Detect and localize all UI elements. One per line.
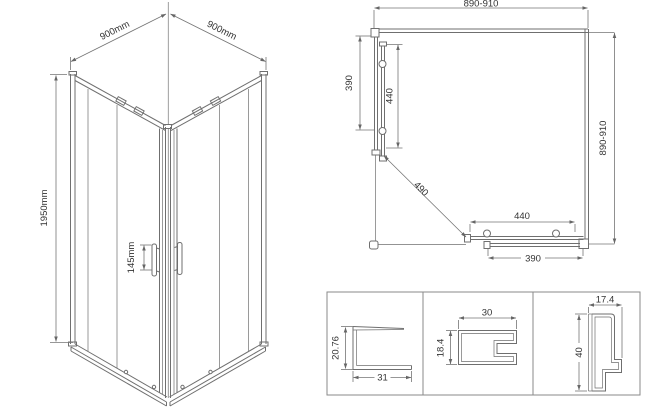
iso-door-handles (152, 243, 182, 277)
dim-label-u-channel-width: 31 (377, 373, 388, 384)
iso-left-wall-glass (88, 89, 163, 394)
dim-iso-width-left: 900mm (71, 2, 169, 124)
iso-corner-post (164, 125, 172, 399)
dim-label-frame-height: 18.4 (436, 339, 447, 358)
plan-right-wall (579, 29, 589, 249)
iso-view: 900mm 900mm 1950mm 145mm (39, 2, 268, 406)
screw (124, 370, 127, 373)
dim-label-plan-side-door: 440 (385, 88, 396, 104)
door-roller (484, 230, 491, 237)
dim-label-door-rail-width: 17.4 (596, 295, 615, 306)
plan-bottom-panels (378, 230, 584, 249)
dim-iso-handle: 145mm (126, 242, 152, 274)
dim-label-iso-handle: 145mm (126, 242, 137, 274)
dim-label-plan-side-fixed: 390 (344, 75, 355, 91)
profile-box-3 (533, 292, 640, 395)
dim-plan-overall-width: 890-910 (374, 0, 588, 28)
dim-label-u-channel-height: 20.76 (331, 336, 342, 360)
screw (181, 385, 184, 388)
drawing-svg: 900mm 900mm 1950mm 145mm (0, 0, 650, 418)
dim-plan-front-door: 440 (470, 211, 575, 232)
plan-structure (370, 29, 589, 250)
screw (209, 370, 212, 373)
dim-plan-side-door: 440 (385, 45, 403, 149)
plan-left-panels (370, 37, 387, 249)
iso-right-wall-glass (174, 89, 249, 394)
dim-label-door-rail-height: 40 (574, 347, 585, 358)
dim-plan-front-fixed: 390 (488, 249, 583, 265)
screw (152, 385, 155, 388)
dim-iso-width-right: 900mm (171, 14, 267, 70)
plan-back-wall (371, 29, 588, 38)
technical-drawing-shower-enclosure: 900mm 900mm 1950mm 145mm (0, 0, 650, 418)
dim-label-plan-front-door: 440 (514, 211, 530, 222)
dim-iso-height: 1950mm (39, 75, 73, 343)
right-door-handle (178, 243, 183, 275)
iso-left-post (69, 72, 77, 347)
iso-dimensions: 900mm 900mm 1950mm 145mm (39, 2, 266, 343)
plan-view: 890-910 890-910 390 440 (344, 0, 615, 265)
door-roller (379, 128, 386, 135)
dim-label-plan-diagonal: 490 (411, 180, 430, 199)
dim-label-plan-overall-depth: 890-910 (598, 121, 609, 156)
door-roller (553, 230, 560, 237)
dim-label-frame-width: 30 (482, 308, 493, 319)
dim-plan-side-fixed: 390 (344, 36, 374, 130)
dim-label-iso-height: 1950mm (39, 189, 50, 226)
dim-label-plan-overall-width: 890-910 (464, 0, 499, 10)
left-door-handle (152, 244, 157, 276)
door-roller (379, 61, 386, 68)
dim-plan-overall-depth: 890-910 (589, 33, 615, 245)
dim-plan-diagonal: 490 (384, 156, 466, 237)
iso-right-post (260, 72, 268, 347)
dim-label-plan-front-fixed: 390 (525, 254, 541, 265)
profile-details: 20.76 31 30 18.4 (327, 292, 640, 395)
